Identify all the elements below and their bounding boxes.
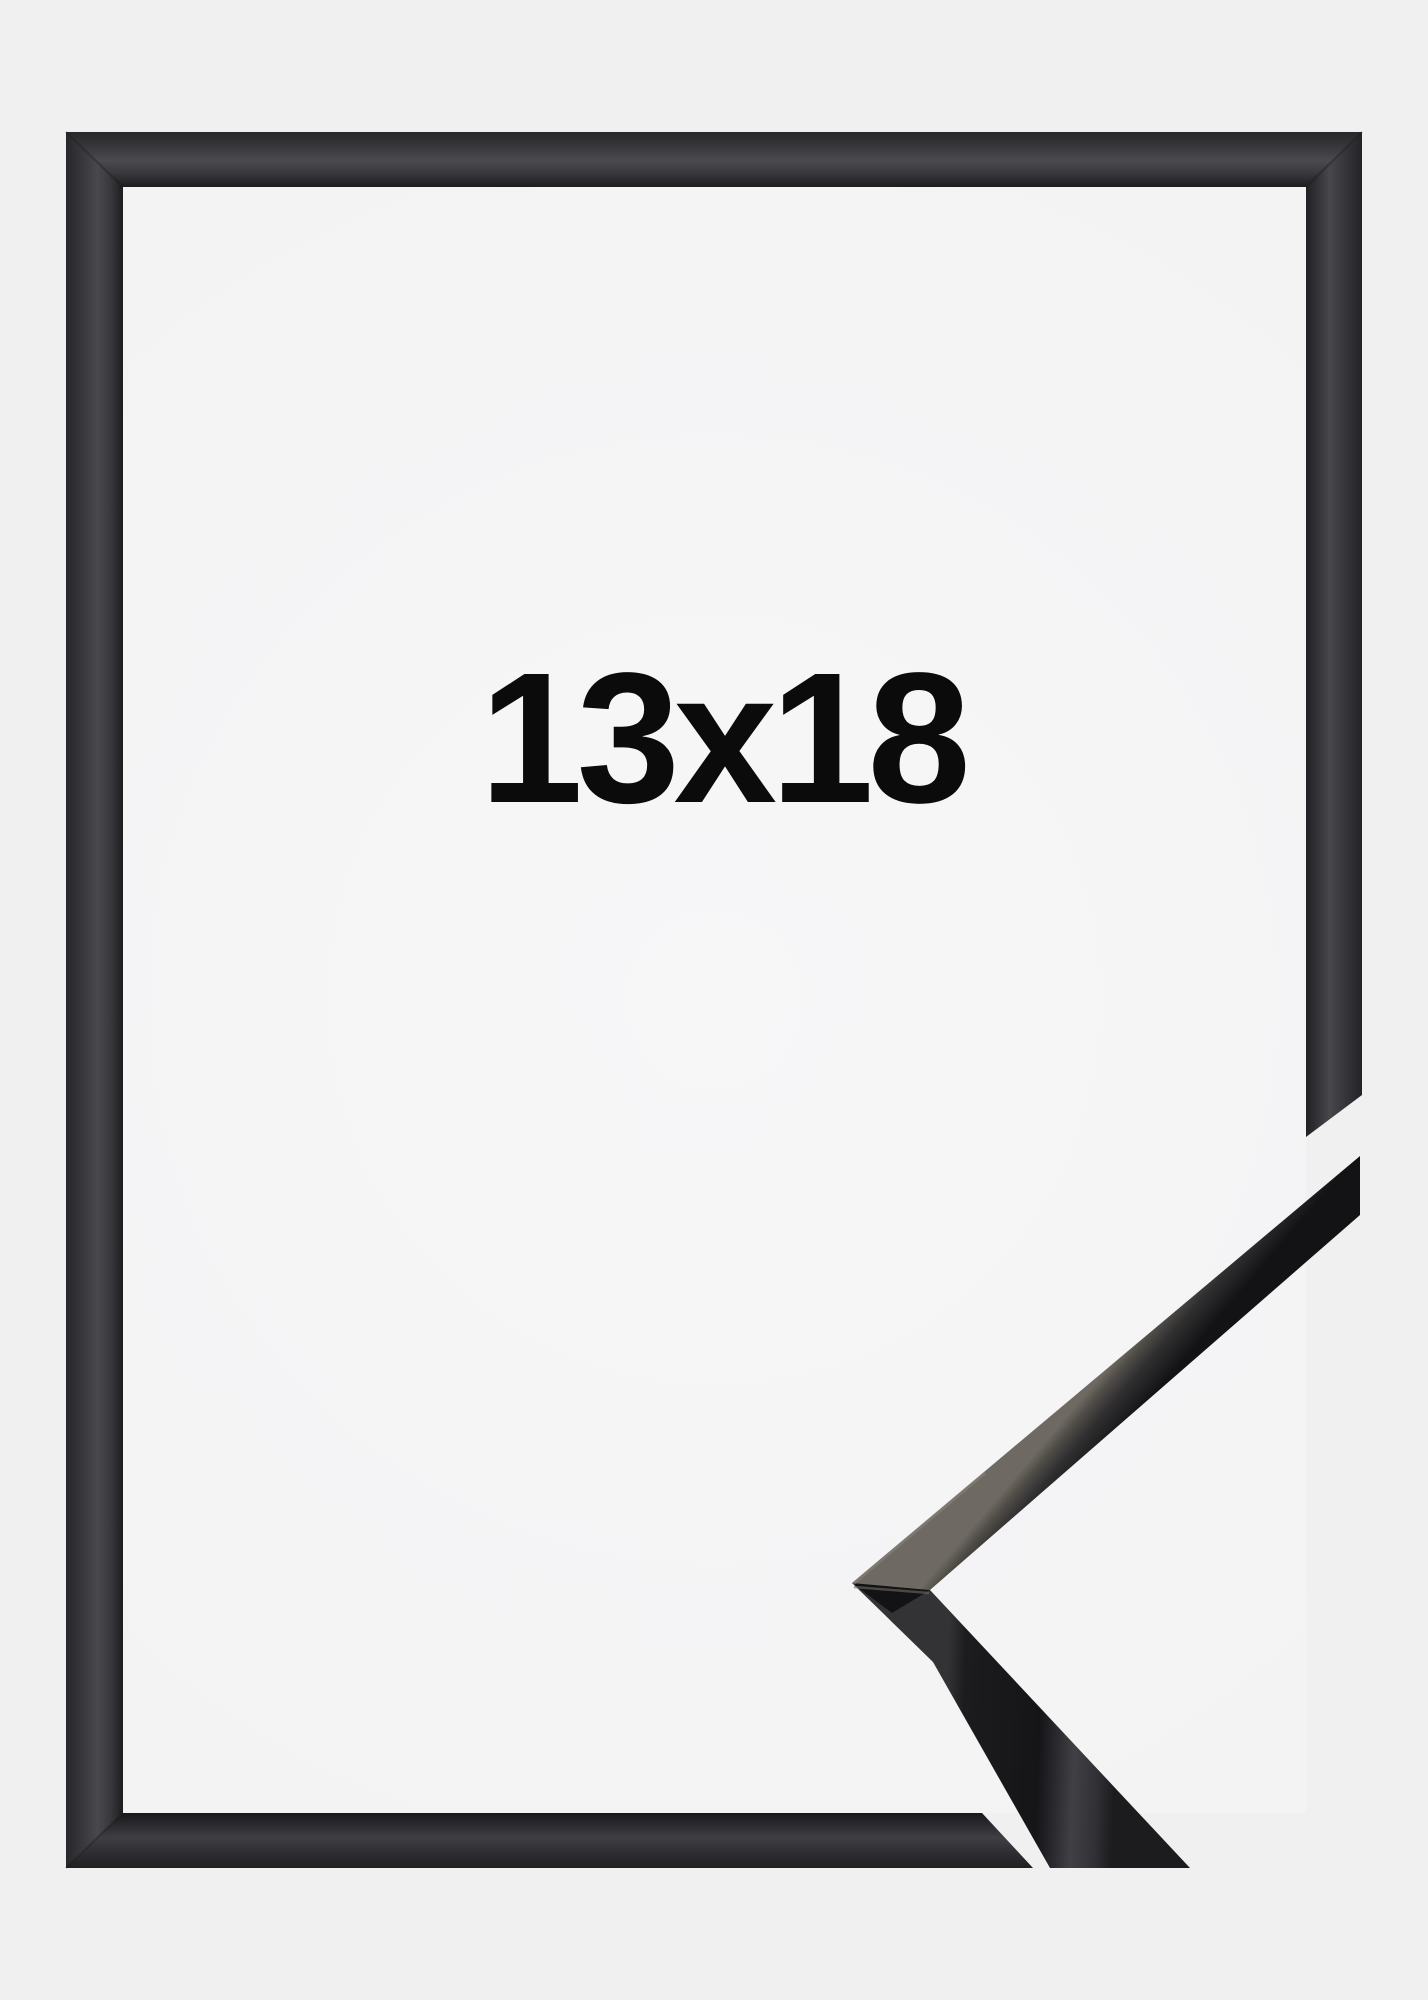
product-photo-black-frame: 13x18 — [0, 0, 1428, 2000]
frame-top-bar — [66, 132, 1362, 187]
frame-inner-area-sheen — [123, 187, 1306, 1813]
size-label: 13x18 — [8, 646, 1428, 832]
frame-left-bar — [66, 132, 123, 1868]
frame-graphic — [0, 0, 1428, 2000]
frame-bottom-bar-cut — [66, 1813, 1033, 1868]
frame-right-bar-cut — [1306, 132, 1362, 1137]
